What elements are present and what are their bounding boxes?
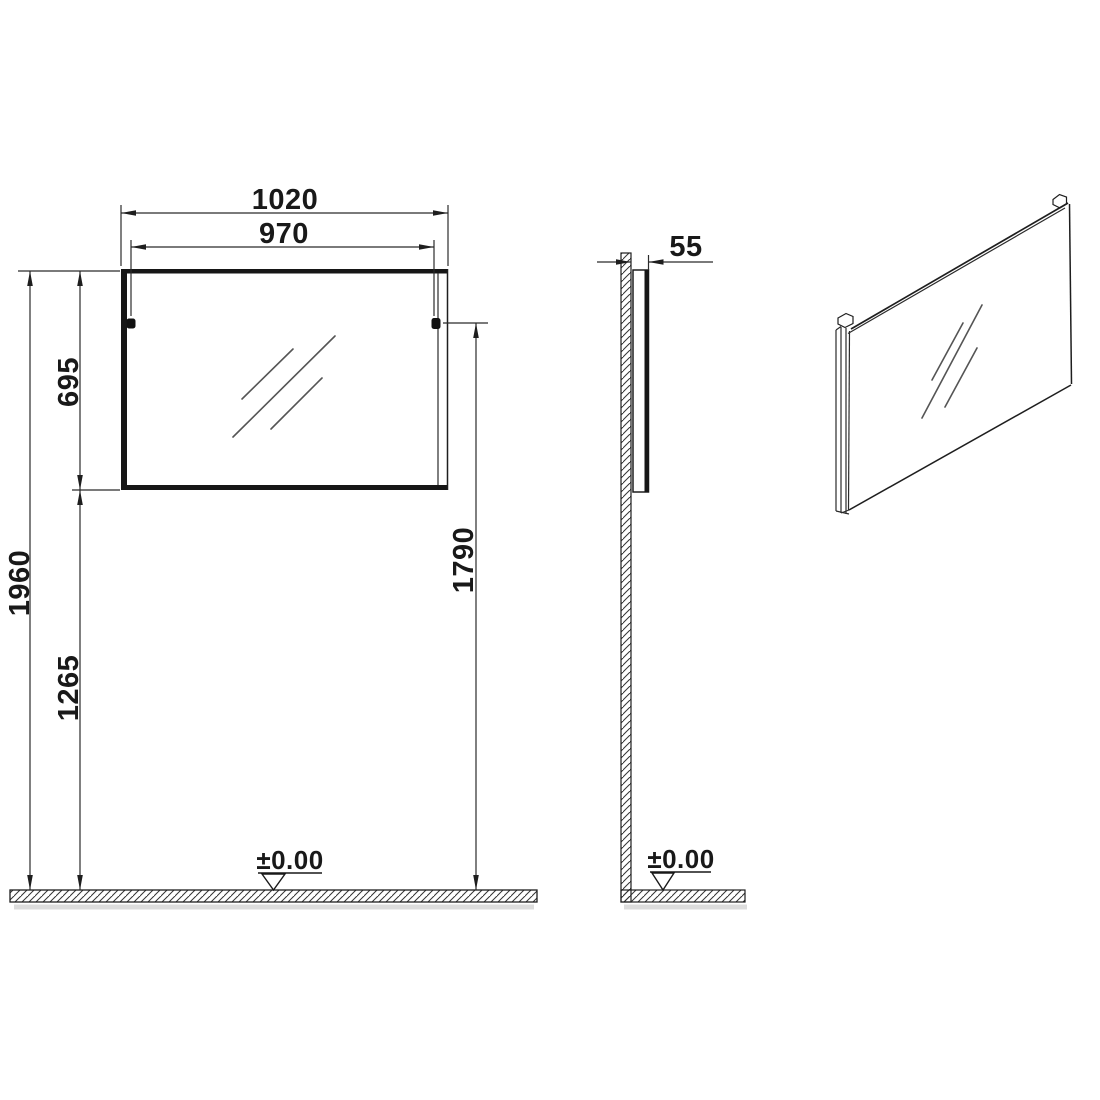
- technical-drawing-page: 1020 970 1960 695 1265: [0, 0, 1100, 1100]
- arrowhead: [27, 271, 33, 286]
- mirror-reflection-icon: [233, 336, 335, 437]
- mirror-glass-edge: [645, 270, 650, 492]
- mounting-clip-left-icon: [127, 319, 136, 329]
- arrowhead: [77, 490, 83, 505]
- arrowhead: [419, 244, 434, 250]
- arrowhead: [473, 875, 479, 890]
- arrowhead: [649, 259, 664, 265]
- mirror-side-profile: [633, 270, 649, 492]
- arrowhead: [121, 210, 136, 216]
- mirror-bottom-edge: [121, 485, 448, 490]
- arrowhead: [77, 875, 83, 890]
- mounting-clip-right-icon: [432, 318, 441, 329]
- arrowhead: [433, 210, 448, 216]
- arrowhead: [77, 475, 83, 490]
- dim-overall-width-label: 1020: [252, 184, 319, 216]
- mirror-reflection-3d-icon: [922, 305, 982, 418]
- wall-section: [621, 253, 631, 902]
- dim-mirror-height-label: 695: [53, 357, 85, 407]
- arrowhead: [77, 271, 83, 286]
- extension-lines-front: [18, 205, 488, 490]
- dim-depth: 55: [597, 231, 713, 270]
- dim-fixing-width: 970: [131, 218, 434, 250]
- front-view: 1020 970 1960 695 1265: [4, 184, 537, 907]
- arrowhead: [27, 875, 33, 890]
- dim-mirror-height: 695: [53, 271, 85, 490]
- dim-overall-width: 1020: [121, 184, 448, 216]
- mirror-left-edge: [121, 269, 127, 490]
- mirror-panel-3d: [848, 203, 1072, 510]
- dim-overall-height: 1960: [4, 271, 36, 890]
- level-triangle-icon: [262, 874, 285, 890]
- floor-level-marker-front: ±0.00: [256, 845, 323, 890]
- technical-drawing: 1020 970 1960 695 1265: [0, 0, 1100, 1100]
- mirror-top-edge: [121, 269, 448, 274]
- arrowhead: [473, 323, 479, 338]
- floor-section-side: [621, 890, 745, 902]
- dim-fixing-width-label: 970: [259, 218, 309, 250]
- floor-level-marker-side: ±0.00: [647, 844, 714, 890]
- level-triangle-icon: [652, 873, 674, 890]
- dim-mirror-bottom-height-label: 1265: [53, 655, 85, 722]
- dim-mirror-bottom-height: 1265: [53, 490, 85, 890]
- dim-fixing-height: 1790: [448, 323, 480, 890]
- dim-depth-label: 55: [669, 231, 702, 263]
- mirror-front: [121, 269, 448, 490]
- dim-overall-height-label: 1960: [4, 550, 36, 617]
- perspective-view: [836, 195, 1072, 515]
- side-view: 55 ±0.00: [597, 231, 747, 907]
- floor-level-front-label: ±0.00: [256, 845, 323, 875]
- dim-fixing-height-label: 1790: [448, 527, 480, 594]
- floor-level-side-label: ±0.00: [647, 844, 714, 874]
- mirror-side-panel-3d: [836, 327, 850, 515]
- floor-section-front: [10, 890, 537, 902]
- arrowhead: [131, 244, 146, 250]
- mounting-tab-left-icon: [838, 314, 853, 328]
